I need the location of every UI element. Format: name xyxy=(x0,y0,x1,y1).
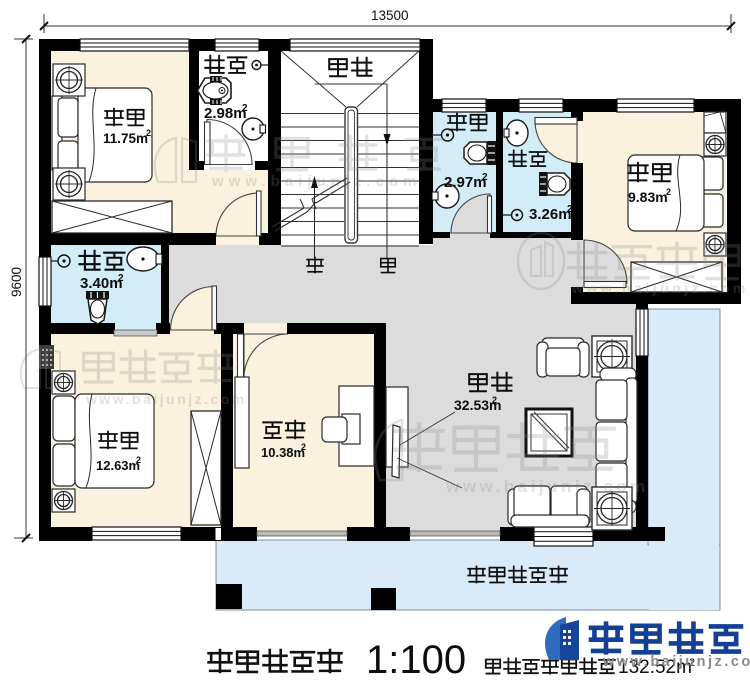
svg-text:www.baijunjz.com: www.baijunjz.com xyxy=(85,391,247,407)
svg-text:3.26m: 3.26m xyxy=(529,206,572,223)
svg-text:9600: 9600 xyxy=(9,267,24,297)
svg-text:www.baijunjz.com: www.baijunjz.com xyxy=(602,654,750,670)
svg-text:2.98m: 2.98m xyxy=(204,105,247,122)
svg-text:www.baijunjz.com: www.baijunjz.com xyxy=(445,477,649,496)
svg-text:2: 2 xyxy=(118,273,124,284)
svg-text:2: 2 xyxy=(666,187,671,197)
svg-text:10.38m: 10.38m xyxy=(261,445,305,460)
svg-text:2: 2 xyxy=(242,103,248,114)
svg-text:2: 2 xyxy=(482,172,488,183)
svg-text:2: 2 xyxy=(567,204,573,215)
svg-text:2: 2 xyxy=(492,395,497,405)
svg-text:2: 2 xyxy=(301,442,306,452)
svg-text:13500: 13500 xyxy=(371,8,409,23)
svg-text:2.97m: 2.97m xyxy=(444,174,487,191)
svg-text:www.baijunjz.com: www.baijunjz.com xyxy=(571,280,749,296)
svg-text:3.40m: 3.40m xyxy=(80,275,123,292)
svg-text:2: 2 xyxy=(136,455,141,465)
svg-text:1:100: 1:100 xyxy=(366,638,466,682)
svg-text:9.83m: 9.83m xyxy=(628,189,668,205)
svg-text:2: 2 xyxy=(146,128,151,138)
svg-text:12.63m: 12.63m xyxy=(96,458,140,473)
svg-text:11.75m: 11.75m xyxy=(103,131,148,146)
svg-text:www.baijunjz.com: www.baijunjz.com xyxy=(211,173,421,190)
